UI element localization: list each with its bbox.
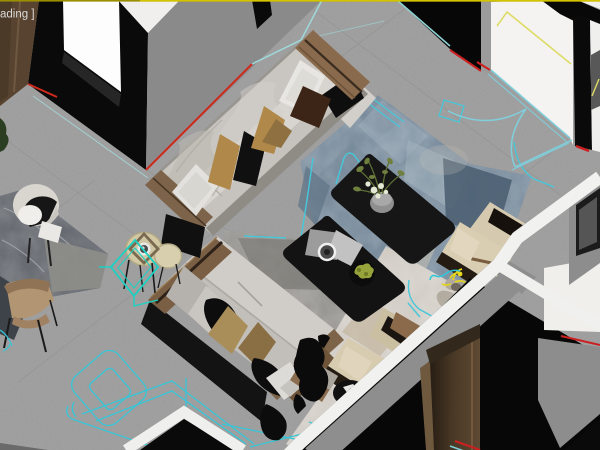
svg-text:ading ]: ading ] — [0, 9, 35, 21]
